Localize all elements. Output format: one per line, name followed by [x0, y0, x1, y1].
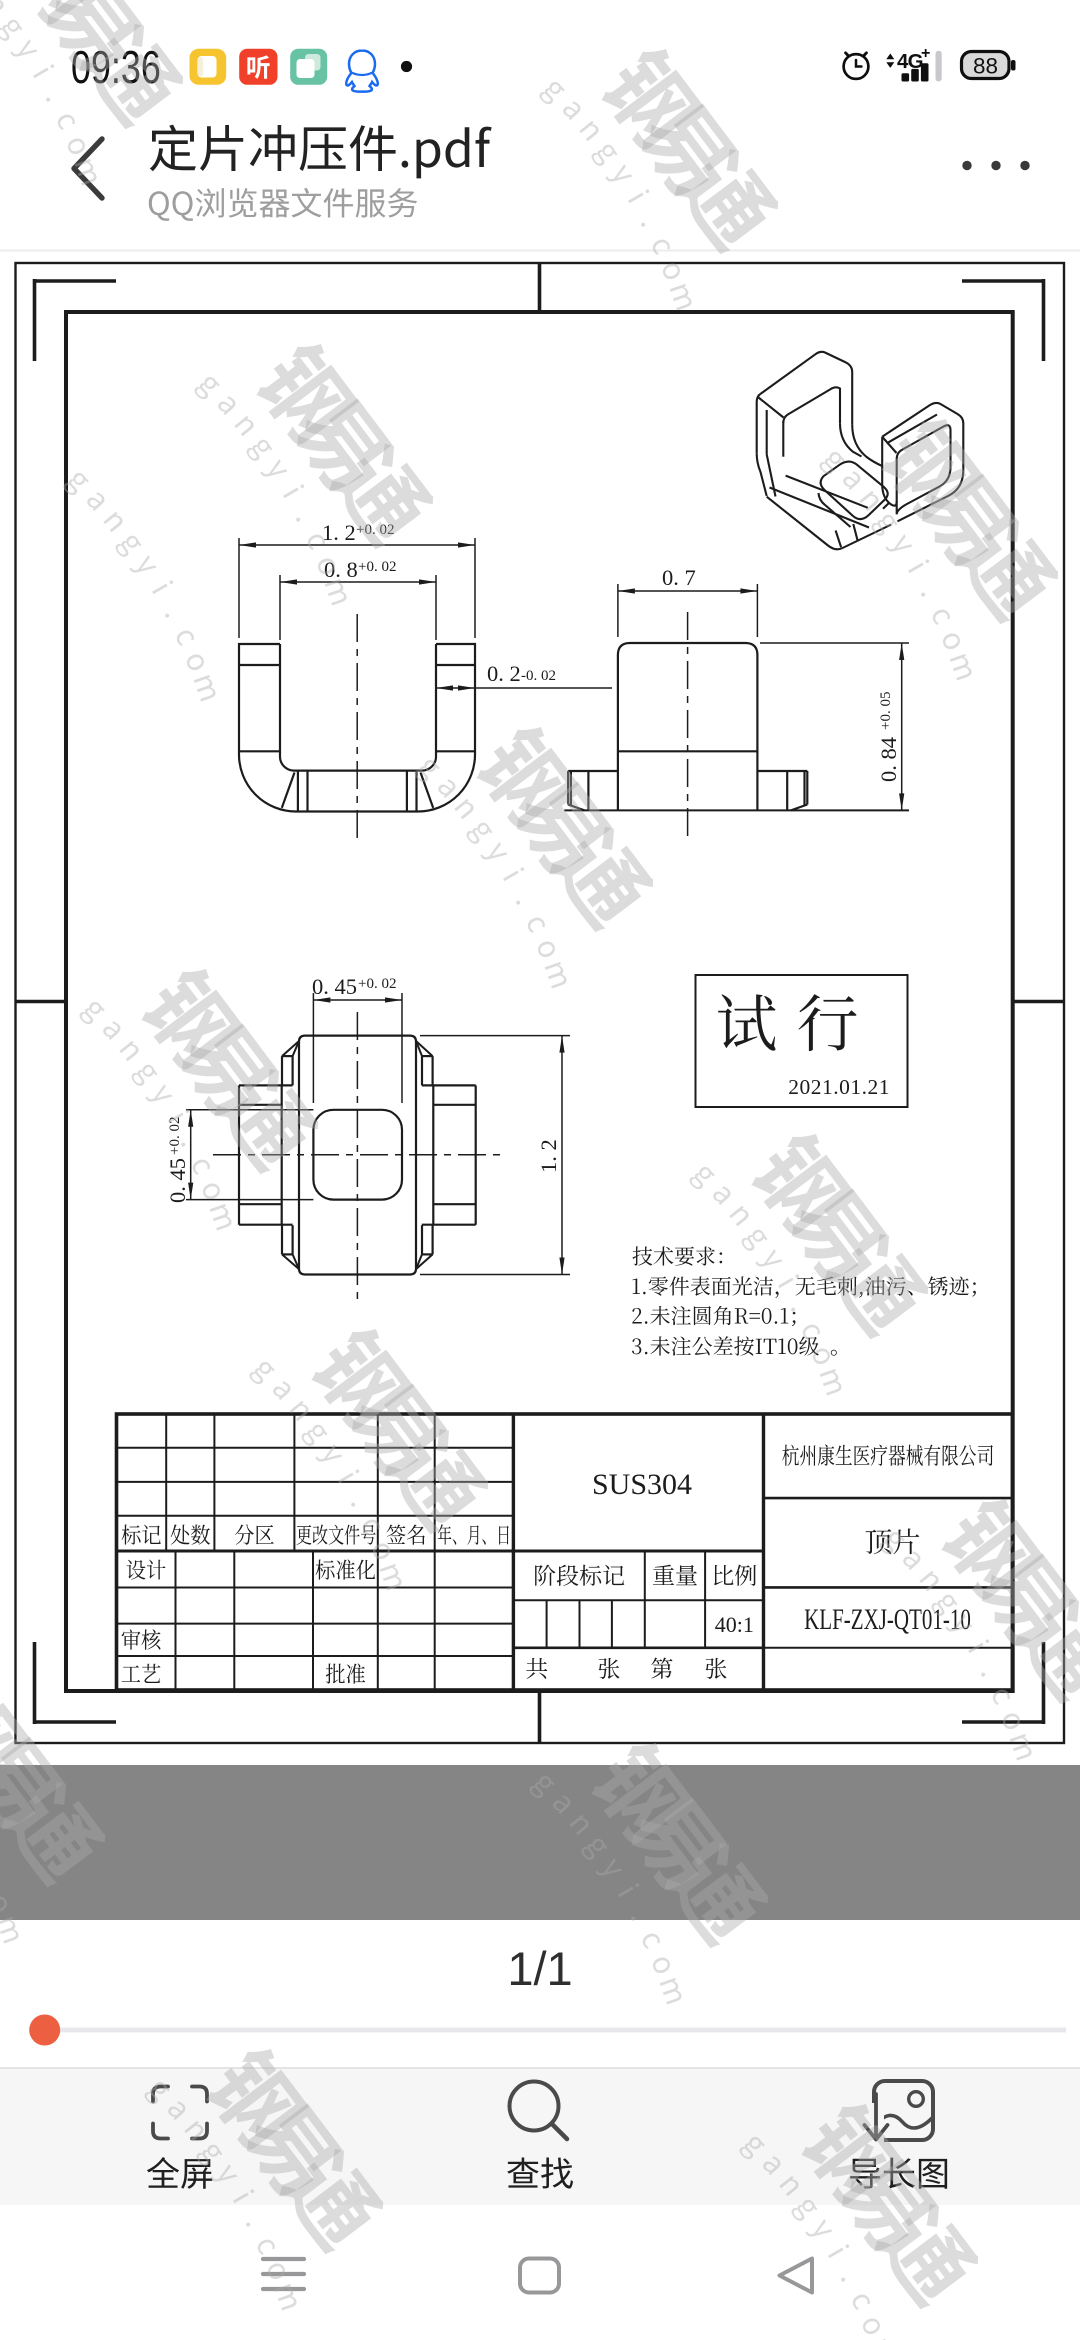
- svg-text:40:1: 40:1: [715, 1612, 754, 1637]
- svg-text:+0. 02: +0. 02: [358, 559, 396, 575]
- svg-text:-0. 02: -0. 02: [521, 668, 556, 684]
- svg-text:1. 2: 1. 2: [536, 1139, 561, 1173]
- svg-text:2021.01.21: 2021.01.21: [788, 1075, 890, 1099]
- svg-text:0. 45: 0. 45: [312, 974, 357, 999]
- svg-text:4G: 4G: [897, 50, 923, 73]
- svg-text:1. 2: 1. 2: [322, 520, 356, 545]
- svg-text:0. 7: 0. 7: [662, 565, 696, 590]
- svg-text:+0. 05: +0. 05: [878, 692, 894, 730]
- svg-text:1/1: 1/1: [507, 1942, 572, 1995]
- svg-text:0. 45: 0. 45: [165, 1158, 190, 1203]
- svg-text:0. 2: 0. 2: [487, 661, 521, 686]
- svg-text:+0. 02: +0. 02: [358, 976, 396, 992]
- svg-text:KLF-ZXJ-QT01-10: KLF-ZXJ-QT01-10: [804, 1602, 971, 1636]
- svg-text:0. 84: 0. 84: [876, 737, 901, 782]
- svg-text:SUS304: SUS304: [592, 1468, 692, 1501]
- svg-text:88: 88: [973, 54, 998, 79]
- svg-text:+: +: [921, 45, 930, 62]
